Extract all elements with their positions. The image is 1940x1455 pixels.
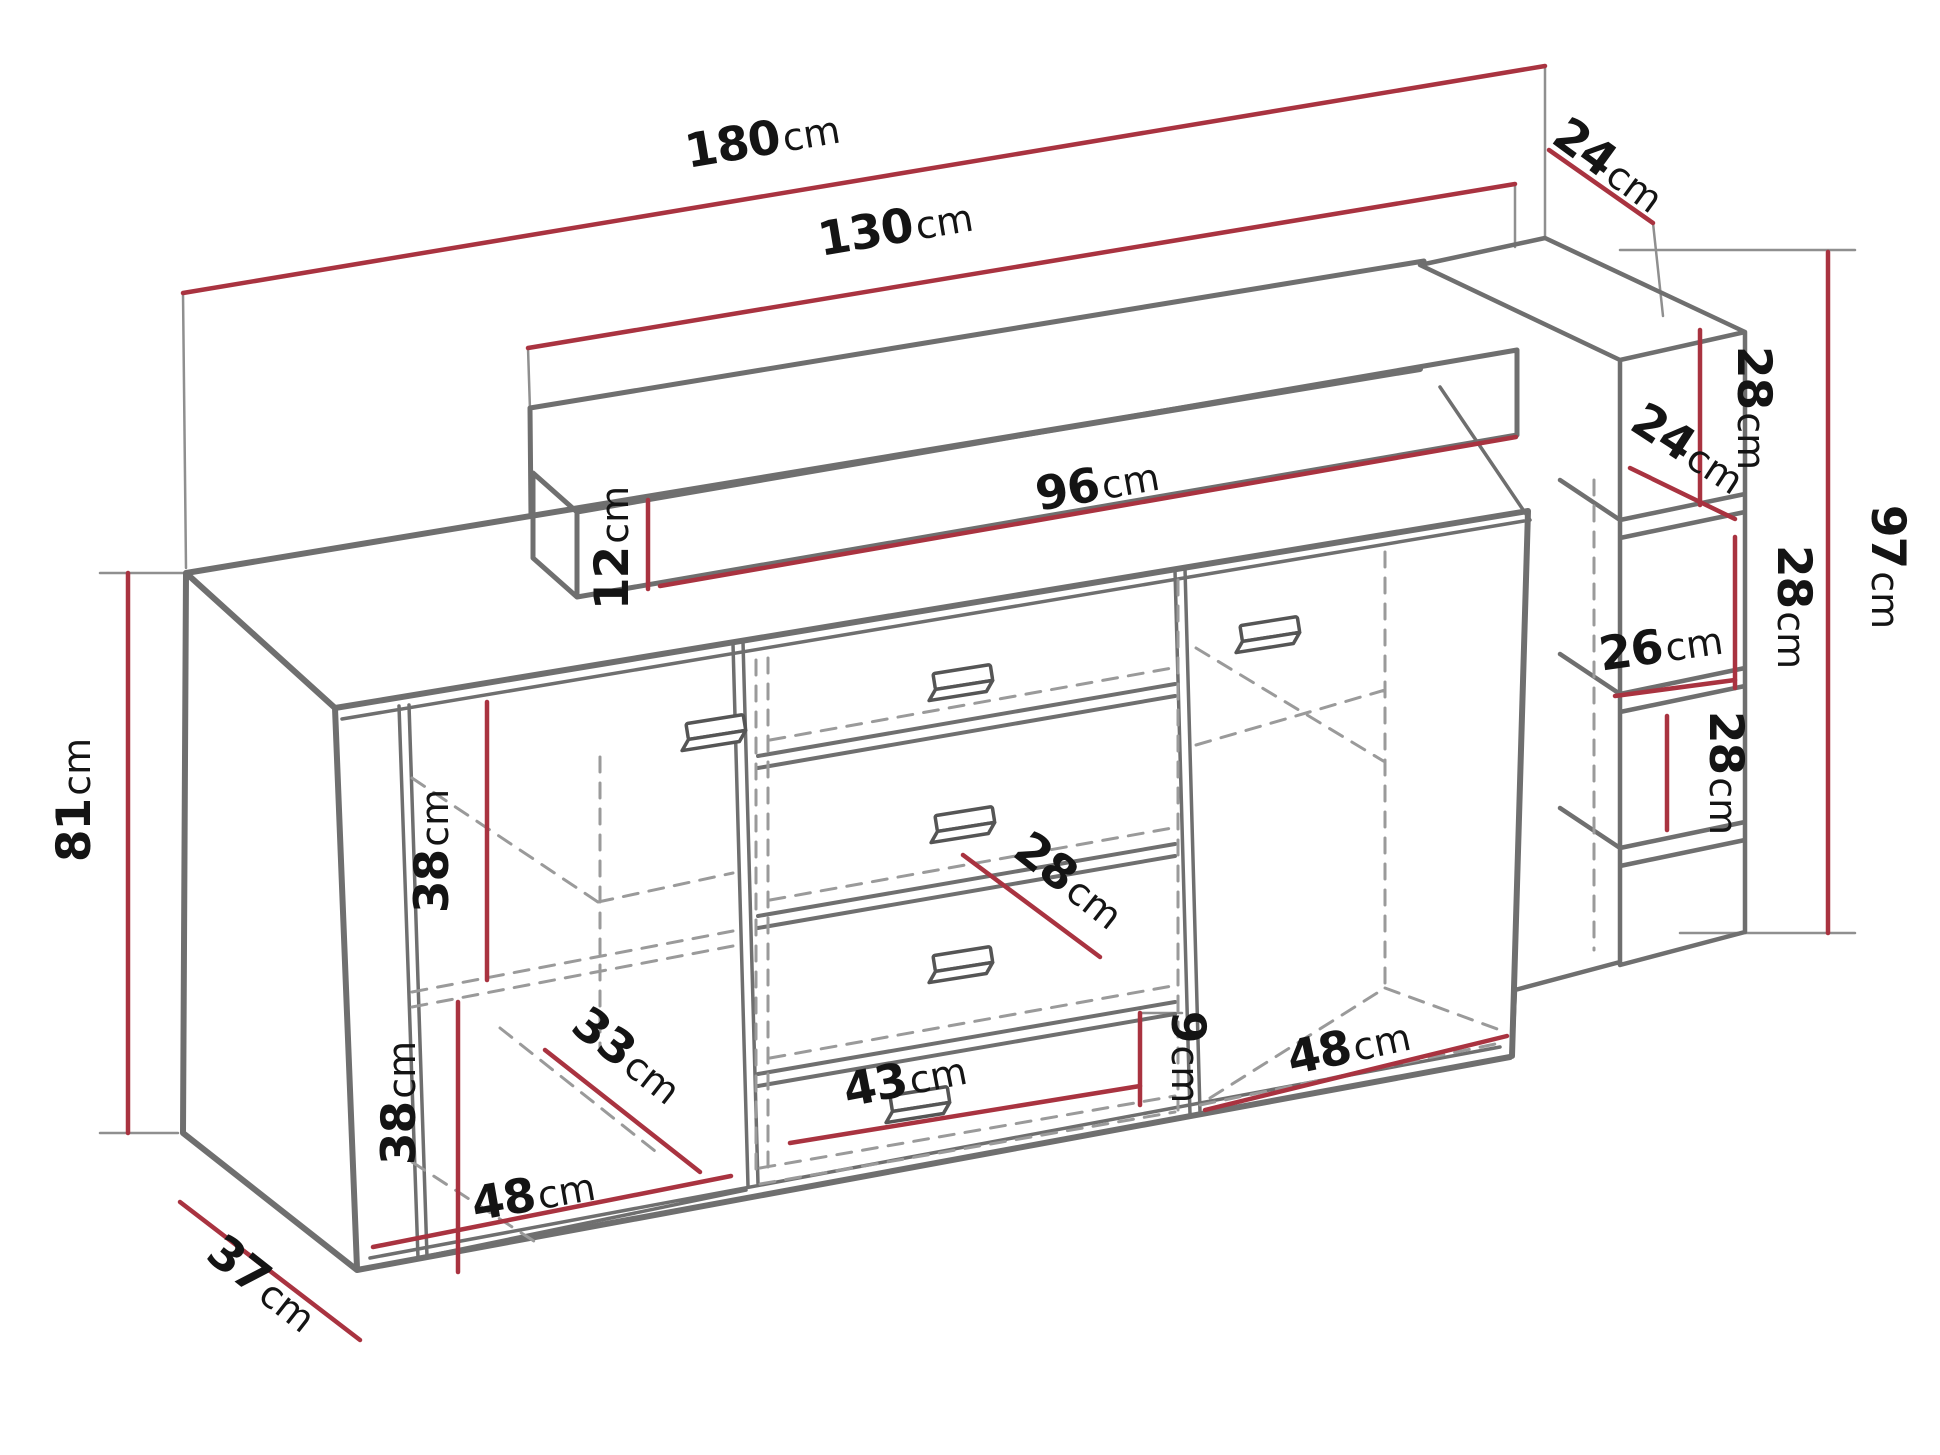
dim-label-body-depth: 37cm: [197, 1224, 329, 1344]
dim-label-total-width: 180cm: [681, 100, 844, 180]
drawer-2-handle: [927, 807, 996, 843]
dim-label-body-height: 81cm: [47, 738, 102, 862]
dim-label-left-door-width: 48cm: [467, 1157, 599, 1233]
dim-label-left-upper-section: 38cm: [405, 789, 460, 913]
dim-label-right-door-width: 48cm: [1282, 1007, 1415, 1087]
dim-label-back-panel-width: 130cm: [814, 188, 977, 268]
diagram-canvas: 180cm 130cm 24cm 96cm 12cm 28cm 24cm 28c…: [0, 0, 1940, 1455]
dim-label-right-middle-section: 28cm: [1766, 545, 1821, 669]
drawer-1-handle: [925, 665, 994, 701]
dim-label-right-opening-width: 26cm: [1595, 611, 1726, 683]
dim-label-left-lower-section: 38cm: [372, 1041, 427, 1165]
dim-label-top-depth: 24cm: [1543, 107, 1676, 225]
dim-label-shelf-length: 96cm: [1031, 447, 1163, 523]
dim-label-drawer-front-height: 9cm: [1160, 1011, 1215, 1104]
dim-label-right-top-section: 28cm: [1726, 346, 1781, 470]
furniture-dimension-diagram: 180cm 130cm 24cm 96cm 12cm 28cm 24cm 28c…: [0, 0, 1940, 1455]
dim-label-drawer-width: 43cm: [839, 1041, 972, 1119]
drawer-3-handle: [925, 947, 994, 983]
dim-label-shelf-height: 12cm: [585, 486, 640, 610]
dim-label-right-column-height: 97cm: [1860, 505, 1915, 629]
dim-label-right-bottom-section: 28cm: [1698, 711, 1753, 835]
dim-label-interior-depth: 33cm: [562, 996, 694, 1116]
right-door-handle: [1232, 617, 1301, 653]
drawer-separators: [758, 684, 1175, 1086]
